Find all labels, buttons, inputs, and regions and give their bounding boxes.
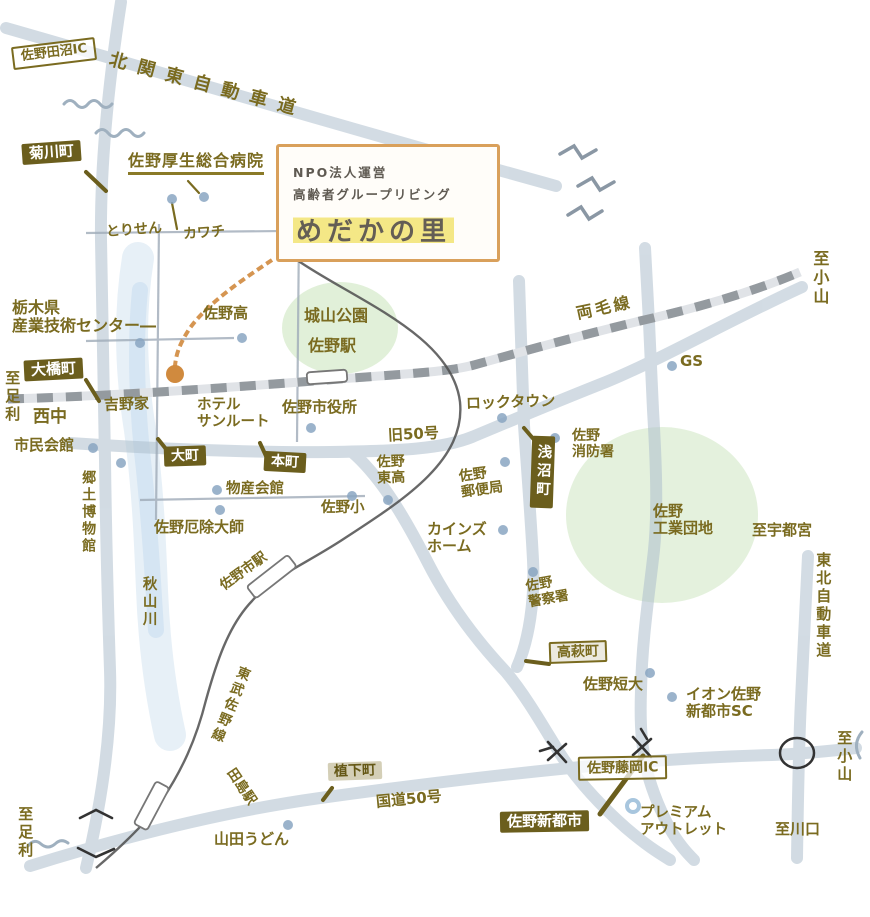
cainz-home-label: カインズ ホーム: [427, 521, 487, 556]
bussan-kaikan-label: 物産会館: [226, 481, 284, 498]
kogyo-danchi-label: 佐野 工業団地: [653, 503, 713, 538]
sano-fujioka-ic-label: 佐野藤岡IC: [578, 755, 668, 781]
yakuyoke-daishi-label: 佐野厄除大師: [154, 519, 244, 536]
post-office-label: 佐野 郵便局: [458, 463, 504, 501]
outlet-ring-dot: [627, 800, 639, 812]
to-oyama-se-label: 至小山: [835, 730, 852, 784]
hotel-sunroute-label: ホテル サンルート: [197, 397, 270, 430]
npo-line2: 高齢者グループリビング: [293, 184, 497, 203]
kawachi-label: カワチ: [182, 224, 225, 243]
akiyama-river-label: 秋山川: [140, 576, 157, 629]
kyu-50-label: 旧50号: [388, 425, 440, 445]
to-utsunomiya-label: 至宇都宮: [752, 522, 812, 539]
to-oyama-ne-label: 至小山: [810, 250, 828, 307]
sano-higashi-high-label: 佐野 東高: [376, 454, 405, 487]
to-ashikaga-south-label: 至足利: [16, 806, 33, 860]
tochigi-center-label: 栃木県 産業技術センター―: [12, 299, 156, 336]
to-kawaguchi-label: 至川口: [775, 821, 820, 838]
facility-name: めだかの里: [293, 211, 454, 248]
omachi-badge: 大町: [164, 445, 207, 467]
yoshinoya-label: 吉野家: [104, 395, 150, 414]
to-ashikaga-west-label: 至足利: [3, 370, 20, 424]
hand-drawn-access-map: 佐野田沼IC 北関東自動車道 菊川町 佐野厚生総合病院 とりせん カワチ NPO…: [0, 0, 870, 917]
premium-outlet-label: プレミアム アウトレット: [640, 805, 727, 838]
civic-hall-label: 市民会館: [14, 437, 74, 454]
hospital-pointers: [172, 181, 199, 229]
yamada-udon-label: 山田うどん: [214, 831, 289, 848]
ohashi-cho-badge: 大橋町: [23, 357, 83, 381]
sano-station-label: 佐野駅: [308, 337, 356, 355]
kyodo-museum-label: 郷土博物館: [80, 470, 96, 555]
west-vertical-road: [86, 2, 121, 868]
destination-marker-dot: [166, 365, 184, 383]
sano-shintoshi-badge: 佐野新都市: [500, 810, 589, 833]
nishi-chu-label: 西中: [33, 408, 67, 428]
npo-line1: NPO法人運営: [293, 162, 497, 181]
tohoku-expressway-road: [797, 556, 808, 858]
sano-high-school-label: 佐野高: [203, 305, 248, 322]
medaka-no-sato-title-box: NPO法人運営 高齢者グループリビング めだかの里: [276, 144, 500, 262]
kosei-hospital-label: 佐野厚生総合病院: [128, 152, 264, 175]
sano-elementary-label: 佐野小: [321, 500, 365, 517]
gas-station-label: GS: [680, 353, 703, 370]
shiroyama-park-label: 城山公園: [304, 307, 368, 325]
sano-station-symbol: [307, 370, 348, 385]
fire-station-label: 佐野 消防署: [572, 428, 614, 460]
map-graphics: [0, 0, 870, 917]
sano-tandai-label: 佐野短大: [583, 676, 643, 693]
tohoku-expressway-label: 東北自動車道: [814, 552, 831, 660]
honcho-badge: 本町: [264, 451, 307, 473]
uetsuka-cho-badge: 植下町: [328, 761, 383, 781]
kikugawa-cho-badge: 菊川町: [21, 140, 81, 165]
asanuma-cho-badge: 浅沼町: [530, 436, 555, 508]
aeon-sc-label: イオン佐野 新都市SC: [686, 686, 761, 721]
city-hall-label: 佐野市役所: [282, 399, 357, 416]
takahagi-cho-badge: 高萩町: [549, 640, 608, 664]
rocktown-label: ロックタウン: [466, 392, 556, 412]
